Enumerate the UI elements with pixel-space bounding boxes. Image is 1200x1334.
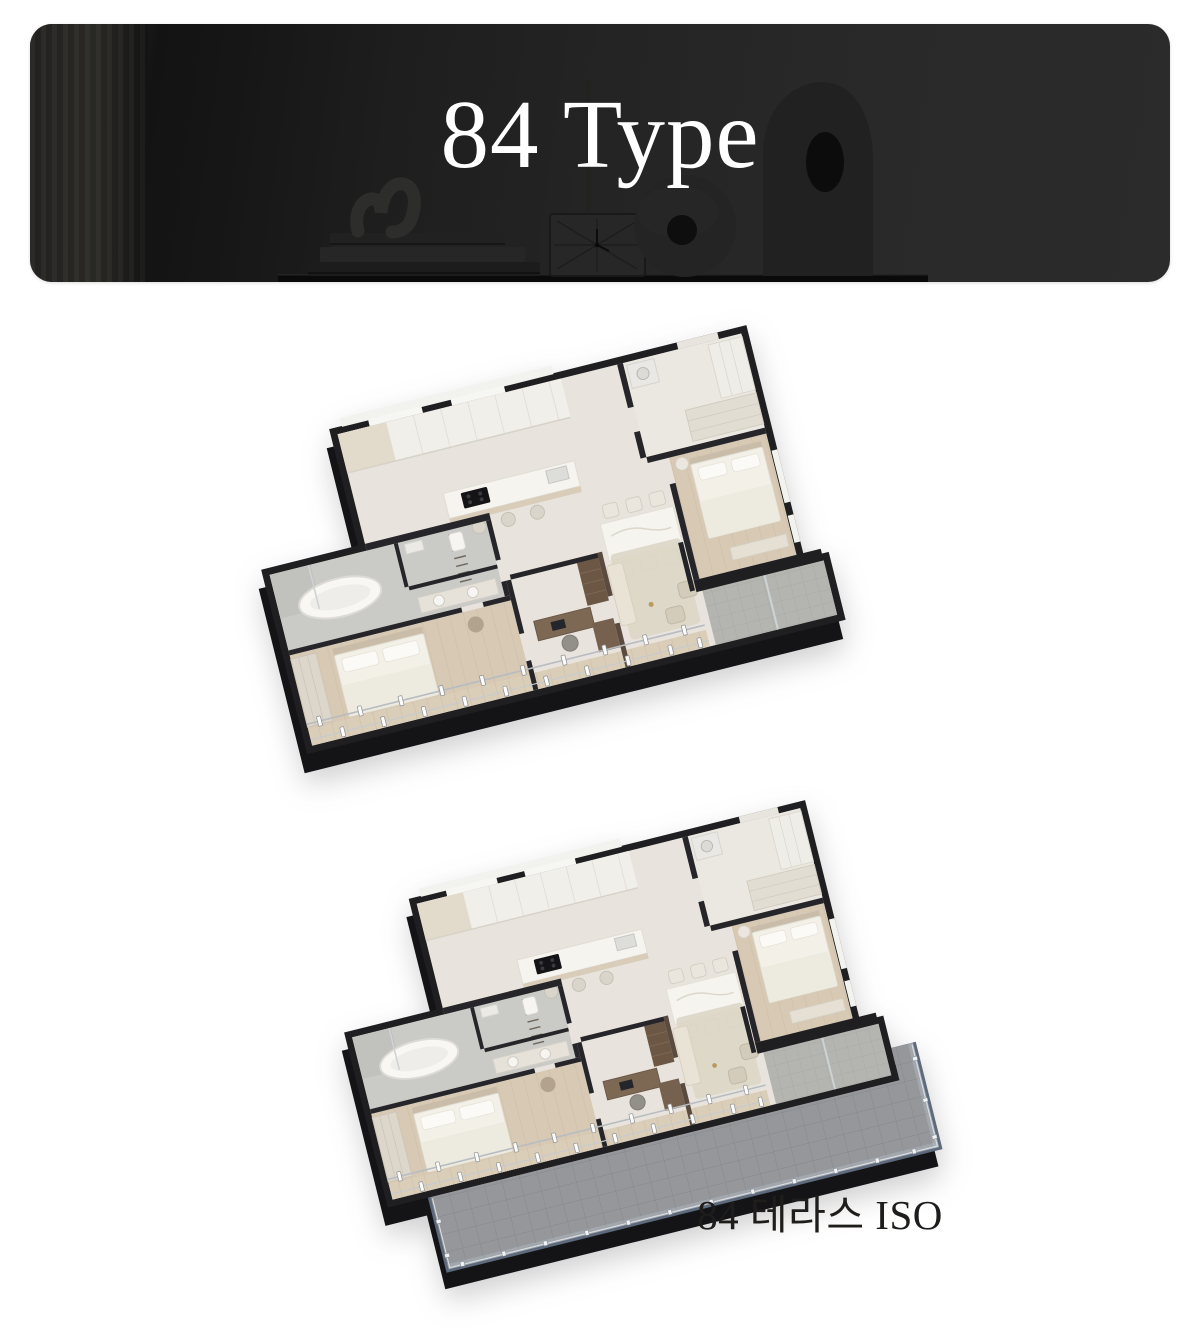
decor-donut-sculpture — [634, 175, 736, 277]
terrace-figure-caption: 84 테라스 ISO — [600, 1192, 1040, 1239]
decor-clock — [550, 214, 645, 276]
figure-84-iso — [195, 316, 855, 786]
floorplan-84-iso — [195, 316, 855, 786]
page-title: 84 Type — [30, 86, 1170, 183]
header-banner: 84 Type — [30, 24, 1170, 282]
decor-squiggle-sculpture — [357, 184, 415, 232]
page: 84 Type 84 테라스 ISO — [0, 0, 1200, 1334]
decor-books — [308, 233, 540, 276]
